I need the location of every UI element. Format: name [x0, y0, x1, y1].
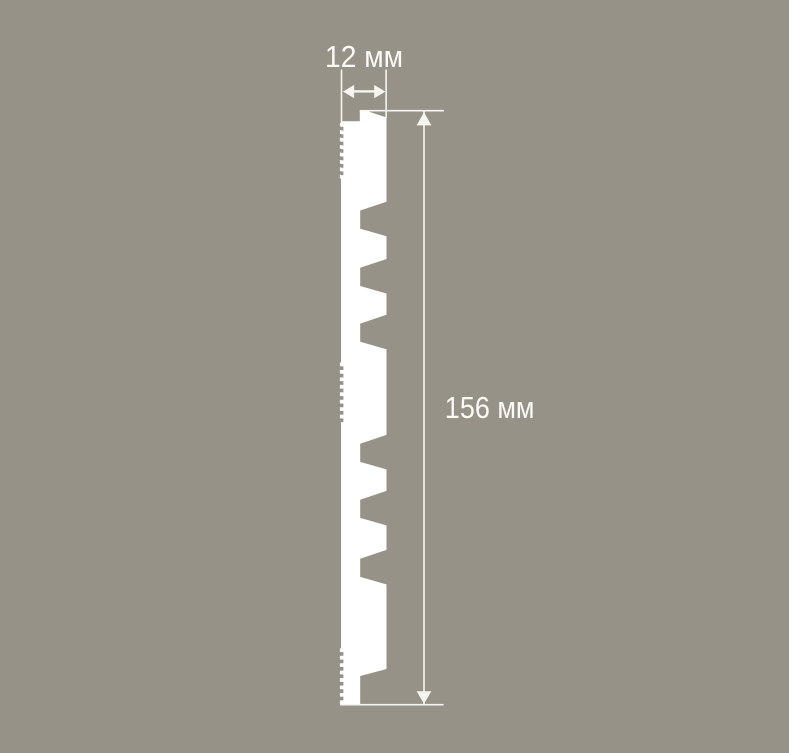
svg-text:12 мм: 12 мм: [325, 40, 403, 74]
svg-text:156 мм: 156 мм: [445, 391, 535, 425]
